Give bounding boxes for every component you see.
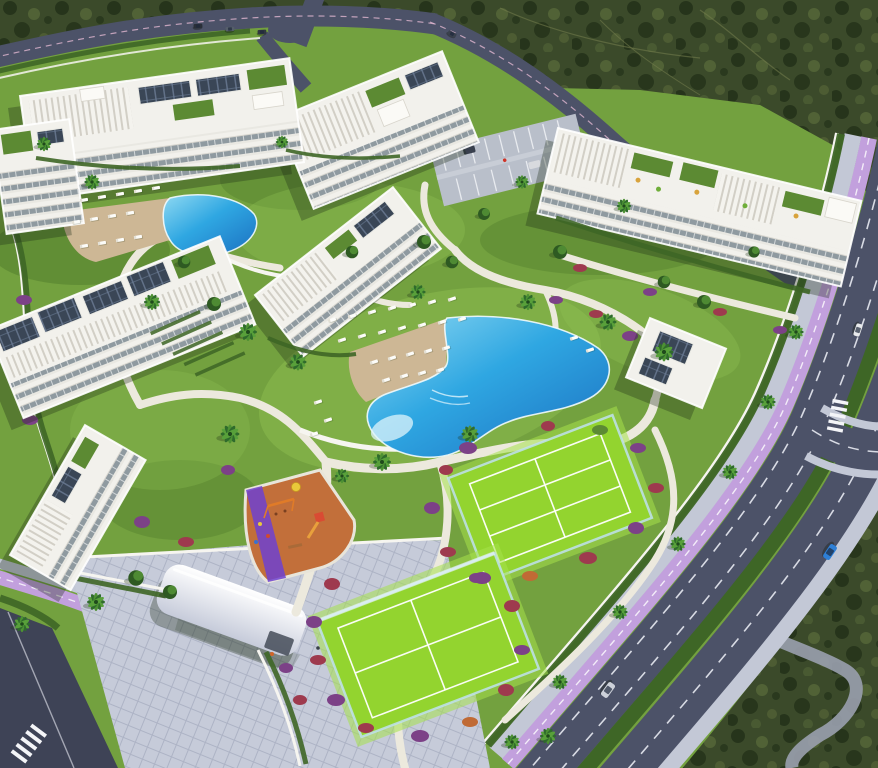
aerial-render-stage: aerial-3d-architectural-render xyxy=(0,0,878,768)
umbrella xyxy=(292,483,301,492)
resort-aerial-scene: aerial-3d-architectural-render xyxy=(0,0,878,768)
